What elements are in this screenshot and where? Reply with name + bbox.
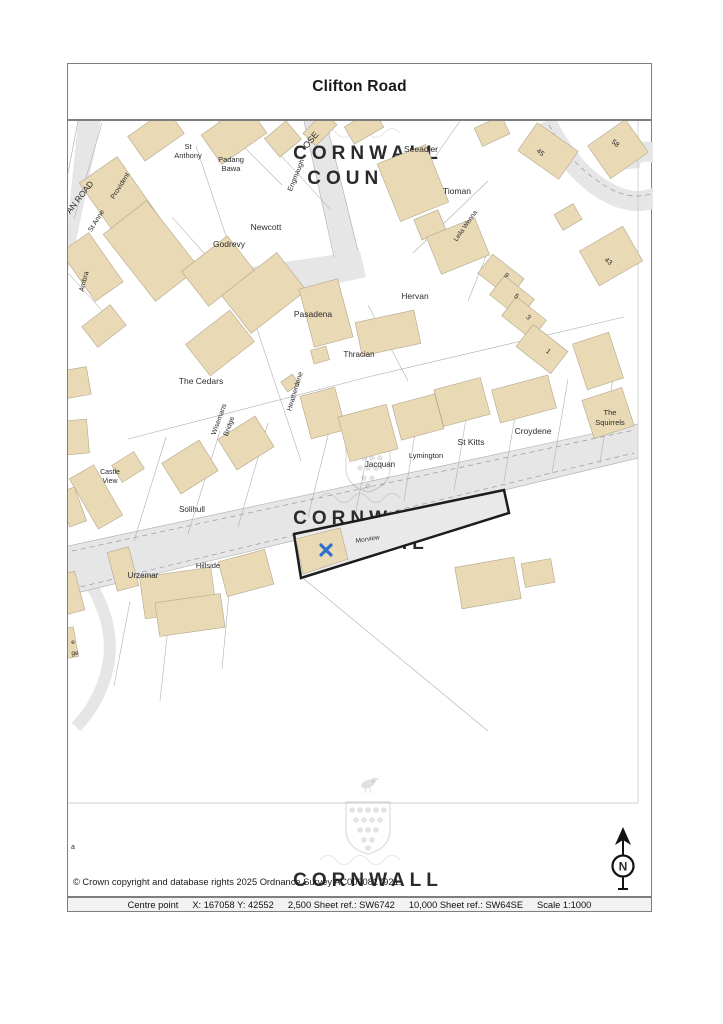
map-label: The <box>604 408 617 417</box>
watermark-part <box>361 837 367 843</box>
parcel-boundary <box>114 601 130 686</box>
map-label: Croydene <box>515 426 552 436</box>
watermark-part <box>365 807 371 813</box>
parcel-boundary <box>134 437 166 541</box>
map-label: St Kitts <box>458 437 485 447</box>
watermark-part <box>349 807 355 813</box>
map-label: a <box>71 844 75 851</box>
watermark-part <box>365 845 371 851</box>
building-footprint <box>344 121 383 144</box>
map-label: Pasadena <box>294 309 333 319</box>
watermark-part <box>320 856 400 865</box>
map-label: Lymington <box>409 451 443 460</box>
map-label: Tioman <box>443 186 471 196</box>
map-label: Newcott <box>251 222 282 232</box>
watermark-part <box>372 778 377 783</box>
building-footprint <box>392 394 444 440</box>
building-footprint <box>474 121 510 146</box>
building-footprint <box>300 387 346 439</box>
map-label: Solihull <box>179 505 205 514</box>
parcel-boundary <box>304 579 488 731</box>
watermark-part <box>353 817 359 823</box>
map-label: Hervan <box>401 291 429 301</box>
map-label: St <box>184 142 192 151</box>
watermark-part <box>369 817 375 823</box>
page-title: Clifton Road <box>312 78 407 96</box>
watermark-part <box>377 817 383 823</box>
watermark-part <box>369 837 375 843</box>
building-footprint <box>434 377 490 426</box>
centre-point-label: Centre point <box>128 900 179 910</box>
title-bar: Clifton Road <box>67 63 652 120</box>
map-label: The Cedars <box>179 376 223 386</box>
building-footprint <box>338 404 398 461</box>
north-arrow-label: N <box>619 860 628 874</box>
map-label: Bawa <box>222 164 242 173</box>
watermark-part <box>361 817 367 823</box>
building-footprint <box>162 440 218 494</box>
map-label: Godrevy <box>213 239 246 249</box>
watermark-part <box>381 807 387 813</box>
building-footprint <box>573 332 624 389</box>
sheet-ref-10000: 10,000 Sheet ref.: SW64SE <box>409 900 523 910</box>
watermark-part <box>357 827 363 833</box>
map-sheet: Clifton Road CORNWALLCOUNCILCORNWALLCOUN… <box>0 0 723 1024</box>
watermark-part <box>376 778 380 780</box>
watermark-part <box>357 465 363 471</box>
scale-label: Scale 1:1000 <box>537 900 591 910</box>
building-footprint <box>310 346 329 364</box>
map-label: Thracian <box>343 350 374 359</box>
map-label: e <box>71 639 75 646</box>
map-label: Hillside <box>196 561 220 570</box>
watermark-part <box>357 807 363 813</box>
building-footprint <box>521 559 555 588</box>
map-label: Castle <box>100 469 120 476</box>
north-arrow: N <box>613 827 634 889</box>
copyright-text: © Crown copyright and database rights 20… <box>73 877 401 887</box>
map-label: Squirrels <box>595 418 625 427</box>
building-footprint <box>355 310 421 356</box>
building-footprint <box>68 367 91 400</box>
map-label: Seeadler <box>404 144 438 154</box>
map-frame: CORNWALLCOUNCILCORNWALLCOUNCILCORNWALLCO… <box>67 120 652 897</box>
watermark-part <box>365 827 371 833</box>
map-canvas: CORNWALLCOUNCILCORNWALLCOUNCILCORNWALLCO… <box>68 121 653 898</box>
map-label: View <box>102 478 118 485</box>
watermark-part <box>369 475 375 481</box>
building-footprint <box>455 557 521 609</box>
map-label: Jacquan <box>365 460 395 469</box>
building-footprint <box>579 226 642 286</box>
map-label: Anthony <box>174 151 202 160</box>
map-label: Engmaugh <box>287 158 306 192</box>
building-footprint <box>492 375 557 423</box>
centre-point-coords: X: 167058 Y: 42552 <box>192 900 274 910</box>
watermark-part <box>361 475 367 481</box>
watermark-part <box>373 807 379 813</box>
building-footprint <box>82 305 126 348</box>
watermark-part <box>373 827 379 833</box>
map-label: ge <box>71 650 79 657</box>
sheet-ref-2500: 2,500 Sheet ref.: SW6742 <box>288 900 395 910</box>
building-footprint <box>588 121 649 179</box>
watermark-part <box>365 483 371 489</box>
map-label: Padang <box>218 155 244 164</box>
map-label: Urzemar <box>128 571 159 580</box>
footer-bar: Centre point X: 167058 Y: 42552 2,500 Sh… <box>67 897 652 912</box>
building-footprint <box>68 419 89 455</box>
map-label: St Anne <box>87 209 106 234</box>
building-footprint <box>554 204 582 231</box>
watermark-part <box>365 788 371 793</box>
